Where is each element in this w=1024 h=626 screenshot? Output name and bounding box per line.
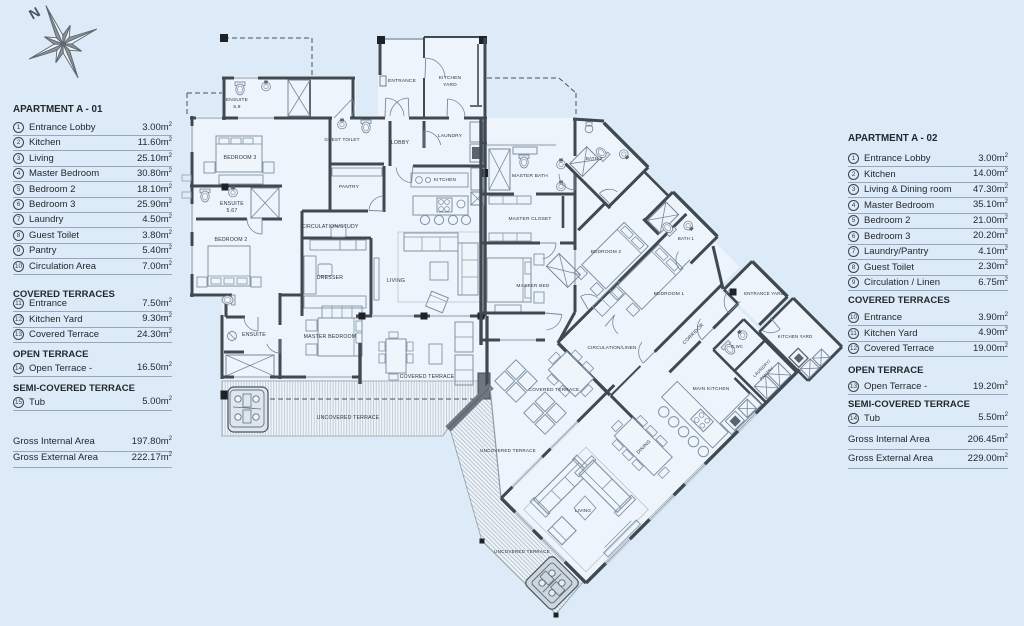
svg-text:G.WC: G.WC	[731, 344, 743, 349]
svg-text:CIRCULATION/STUDY: CIRCULATION/STUDY	[301, 224, 359, 230]
svg-text:UNCOVERED TERRACE: UNCOVERED TERRACE	[317, 415, 380, 421]
svg-text:LOBBY: LOBBY	[391, 140, 410, 146]
svg-text:ENSUITE: ENSUITE	[226, 97, 248, 103]
svg-text:BEDROOM 2: BEDROOM 2	[591, 249, 622, 255]
svg-text:GUEST TOILET: GUEST TOILET	[324, 137, 359, 142]
svg-text:BATH 2: BATH 2	[586, 156, 603, 161]
svg-text:ENSUITE: ENSUITE	[220, 201, 244, 207]
svg-text:ENTRANCE: ENTRANCE	[388, 78, 416, 84]
svg-text:LIVING: LIVING	[387, 278, 405, 284]
svg-text:MASTER CLOSET: MASTER CLOSET	[508, 216, 551, 222]
svg-text:5.9: 5.9	[233, 104, 240, 110]
svg-text:UNCOVERED TERRACE: UNCOVERED TERRACE	[494, 549, 550, 554]
svg-text:CIRCULATION/LINEN: CIRCULATION/LINEN	[587, 345, 636, 350]
svg-text:N: N	[26, 4, 43, 23]
svg-text:DRESSER: DRESSER	[317, 275, 344, 281]
svg-text:LAUNDRY: LAUNDRY	[438, 133, 463, 139]
svg-text:MASTER BATH: MASTER BATH	[512, 173, 548, 179]
svg-text:ENSUITE: ENSUITE	[242, 332, 266, 338]
svg-text:LIVING: LIVING	[575, 508, 591, 513]
svg-text:COVERED TERRACE: COVERED TERRACE	[400, 374, 455, 380]
svg-text:COVERED TERRACE: COVERED TERRACE	[529, 387, 580, 393]
svg-text:YARD: YARD	[443, 82, 457, 88]
svg-text:MASTER BED: MASTER BED	[516, 283, 550, 289]
svg-text:BATH 1: BATH 1	[678, 236, 695, 241]
svg-text:PANTRY: PANTRY	[339, 184, 360, 190]
svg-text:KITCHEN: KITCHEN	[439, 75, 462, 81]
svg-text:KITCHEN YARD: KITCHEN YARD	[778, 334, 813, 339]
svg-text:MASTER BEDROOM: MASTER BEDROOM	[304, 334, 357, 340]
svg-text:BEDROOM 3: BEDROOM 3	[224, 155, 257, 161]
svg-text:UNCOVERED TERRACE: UNCOVERED TERRACE	[480, 448, 536, 453]
svg-text:5.67: 5.67	[227, 208, 238, 214]
svg-text:KITCHEN: KITCHEN	[434, 177, 457, 183]
svg-text:MAIN KITCHEN: MAIN KITCHEN	[693, 386, 730, 392]
svg-text:BEDROOM 2: BEDROOM 2	[215, 237, 248, 243]
svg-text:BEDROOM 1: BEDROOM 1	[654, 291, 685, 297]
svg-text:ENTRANCE YARD: ENTRANCE YARD	[744, 291, 784, 296]
